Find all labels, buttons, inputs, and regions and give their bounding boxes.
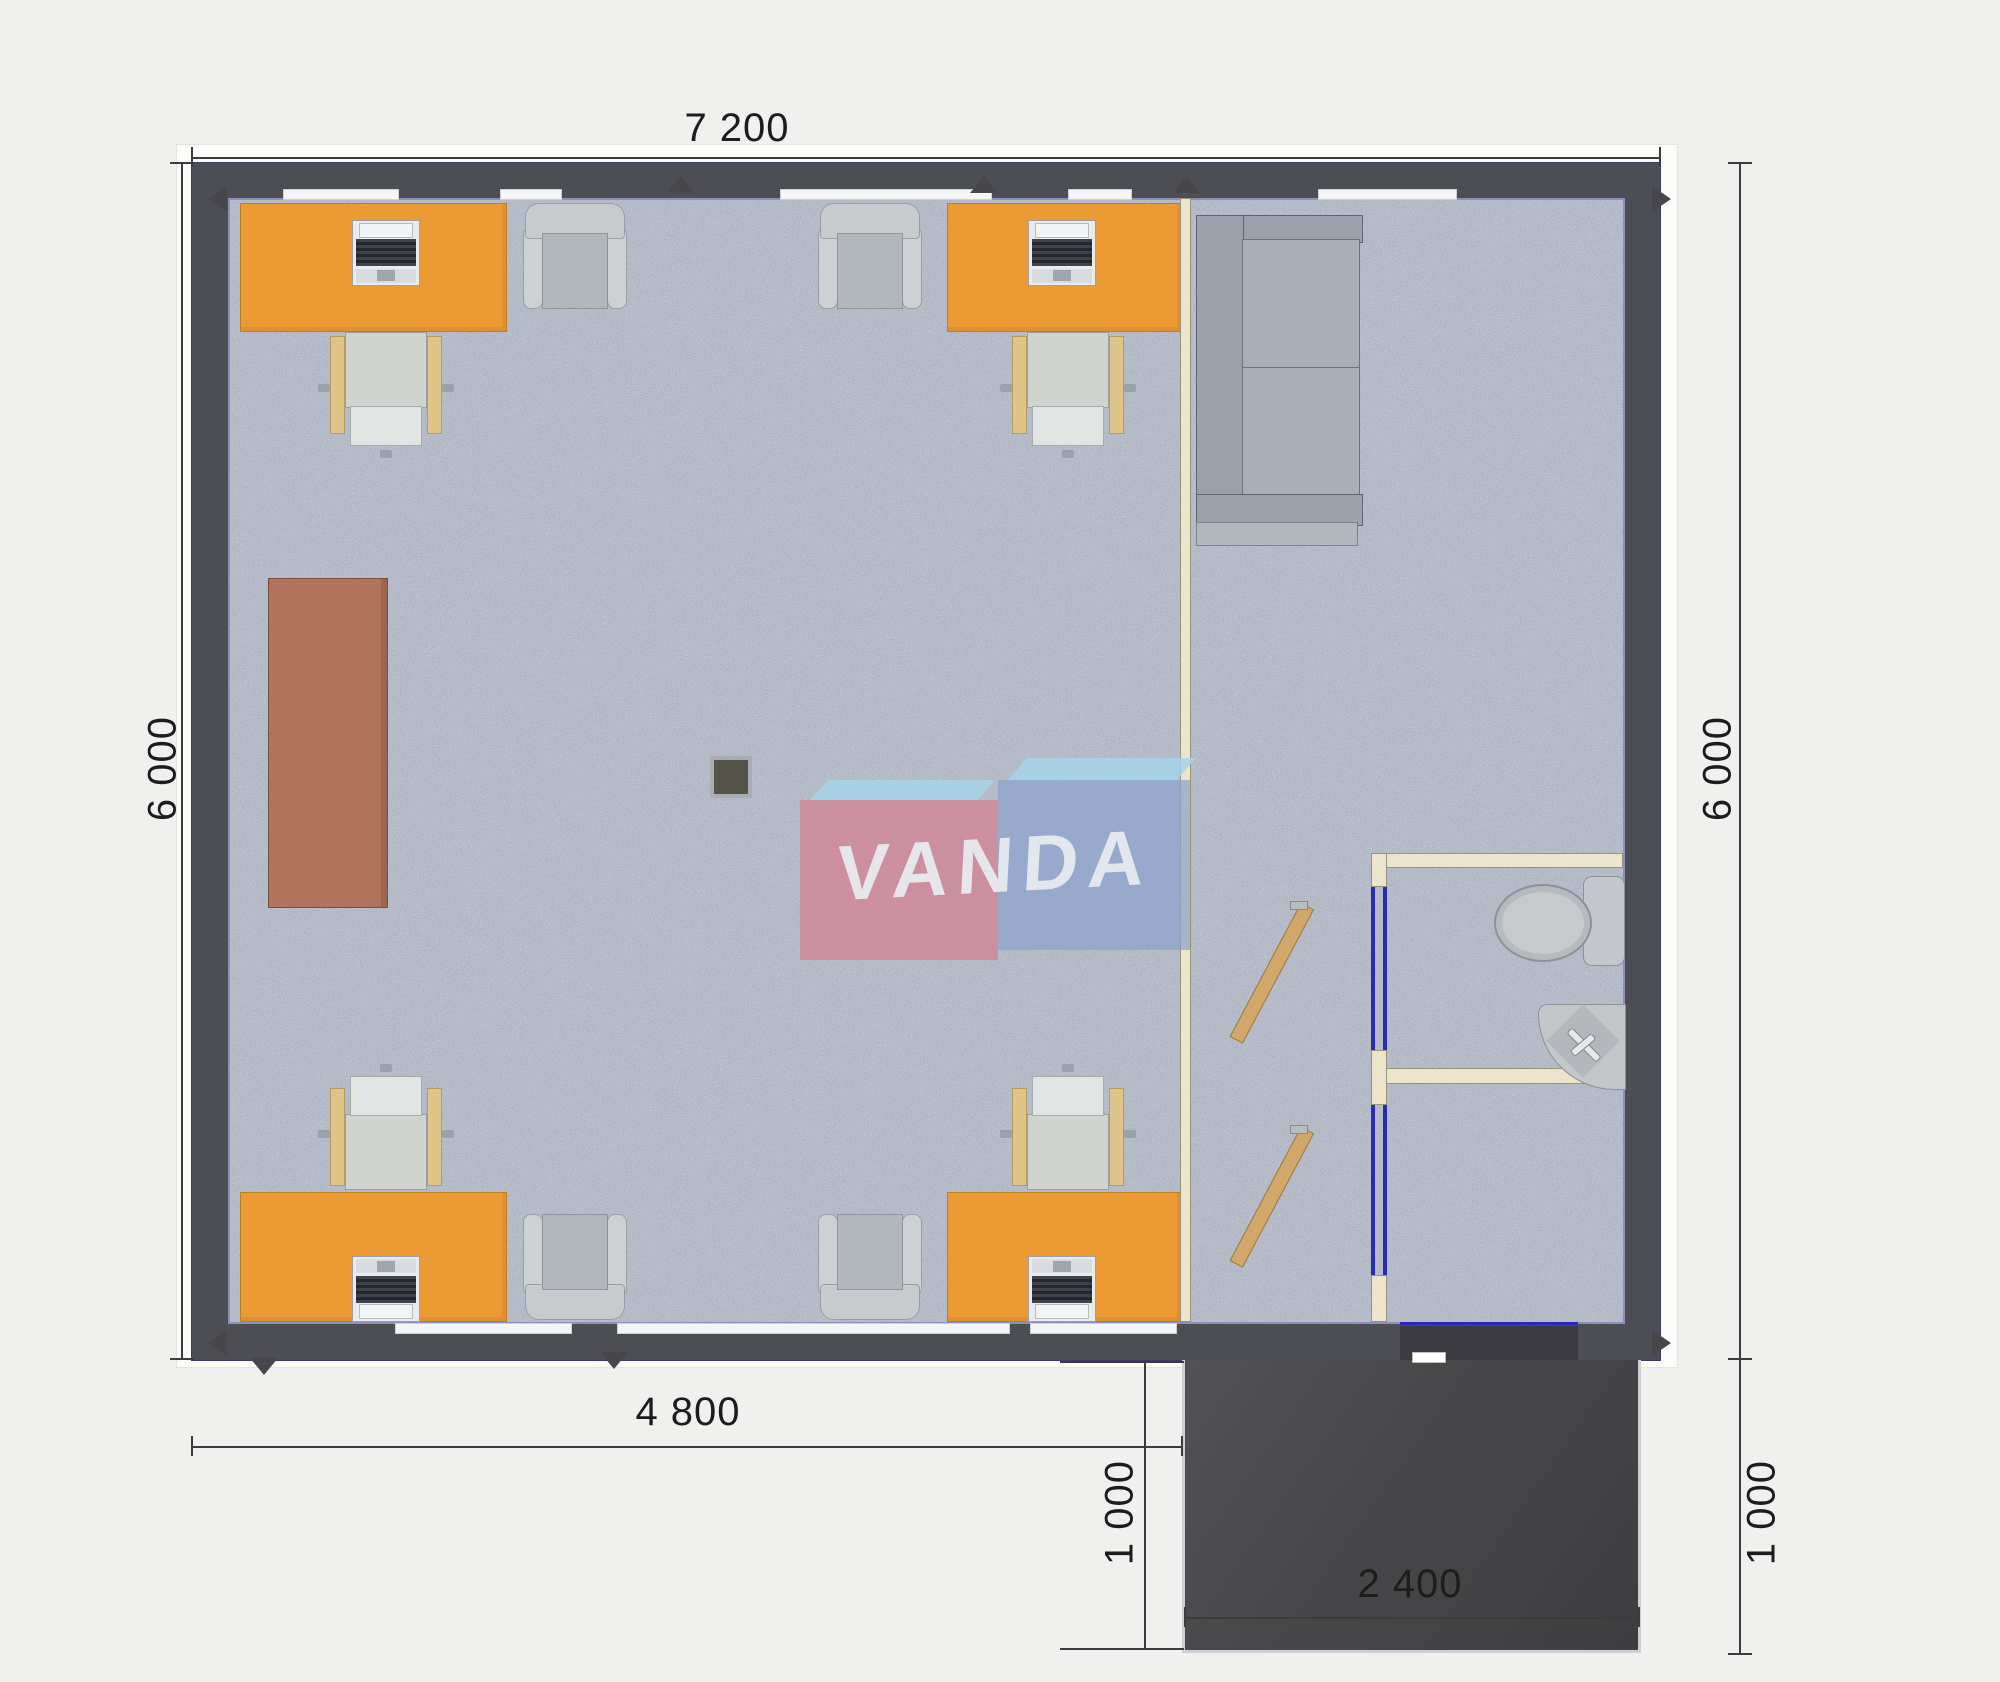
- armchair: [818, 203, 922, 315]
- window-icon: [1068, 189, 1132, 200]
- sofa-cushion: [1242, 239, 1360, 369]
- office-chair: [1012, 1072, 1124, 1190]
- toilet-bowl: [1494, 884, 1592, 962]
- logo-bevel: [808, 780, 996, 802]
- door-frame: [1371, 1105, 1375, 1275]
- chair-back: [345, 332, 427, 408]
- dimension-tick: [1060, 1648, 1184, 1650]
- dimension-tick: [1181, 1436, 1183, 1456]
- laptop-icon: [352, 1256, 420, 1322]
- armchair: [818, 1208, 922, 1320]
- dimension-tick: [191, 1436, 193, 1456]
- laptop-keyboard: [356, 239, 416, 266]
- corner-marker-icon: [1652, 1330, 1671, 1356]
- wall-joint-marker-icon: [667, 176, 695, 193]
- chair-seat: [350, 406, 422, 446]
- armchair: [523, 203, 627, 315]
- dimension-tick: [1184, 1607, 1186, 1627]
- dimension-tick: [1728, 162, 1752, 164]
- corner-marker-icon: [250, 1358, 278, 1375]
- floor-box-icon: [710, 756, 752, 798]
- corner-marker-icon: [208, 186, 227, 212]
- dimension-line: [192, 157, 1660, 159]
- dimension-label-bottom-main: 4 800: [588, 1390, 788, 1435]
- sofa-cushion: [1242, 367, 1360, 497]
- dimension-label-top: 7 200: [637, 106, 837, 151]
- dimension-tick: [1638, 1607, 1640, 1627]
- chair-armrest: [330, 336, 345, 434]
- dimension-tick: [1728, 1358, 1752, 1360]
- dimension-line: [1185, 1617, 1640, 1619]
- vanda-watermark: VANDA: [790, 758, 1200, 970]
- chair-armrest: [427, 336, 442, 434]
- chair-wheel-icon: [318, 384, 330, 392]
- dimension-label-right: 6 000: [1696, 684, 1741, 854]
- door-handle-icon: [1290, 901, 1308, 910]
- chair-wheel-icon: [442, 384, 454, 392]
- dimension-tick: [1728, 1653, 1752, 1655]
- dimension-label-porch-bottom: 2 400: [1310, 1562, 1510, 1607]
- corner-marker-icon: [1652, 186, 1671, 212]
- dimension-tick: [170, 1358, 194, 1360]
- dimension-tick: [1060, 1361, 1184, 1363]
- dimension-tick: [170, 162, 194, 164]
- window-icon: [395, 1323, 572, 1334]
- armchair: [523, 1208, 627, 1320]
- hall-wall: [1371, 1050, 1387, 1105]
- door-frame: [1371, 887, 1375, 1050]
- office-chair: [330, 1072, 442, 1190]
- entrance-porch: [1185, 1360, 1638, 1652]
- dimension-label-porch-right: 1 000: [1740, 1428, 1785, 1598]
- dimension-line: [192, 1446, 1183, 1448]
- laptop-icon: [352, 220, 420, 286]
- storage-cabinet: [268, 578, 388, 908]
- armchair-seat: [542, 233, 608, 309]
- floor-plan: 7 200 6 000 6 000 1 000 4 800 1 000 2 40…: [0, 0, 2000, 1682]
- window-icon: [1030, 1323, 1177, 1334]
- entrance-door-threshold: [1412, 1352, 1446, 1363]
- office-chair: [330, 332, 442, 450]
- bathroom-wall: [1371, 853, 1623, 868]
- dimension-tick: [1659, 147, 1661, 167]
- dimension-label-porch-left: 1 000: [1098, 1428, 1143, 1598]
- wall-joint-marker-icon: [970, 176, 998, 193]
- hall-wall: [1371, 853, 1387, 887]
- porch-edge: [1182, 1650, 1641, 1653]
- hall-wall: [1371, 1275, 1387, 1322]
- dimension-line: [1144, 1362, 1146, 1650]
- door-frame: [1383, 887, 1387, 1050]
- corner-marker-icon: [208, 1330, 227, 1356]
- sofa-back: [1196, 215, 1244, 527]
- door-frame: [1383, 1105, 1387, 1275]
- dimension-label-left: 6 000: [141, 684, 186, 854]
- laptop-icon: [1028, 1256, 1096, 1322]
- window-icon: [1318, 189, 1457, 200]
- window-icon: [500, 189, 562, 200]
- dimension-tick: [191, 147, 193, 167]
- door-handle-icon: [1290, 1125, 1308, 1134]
- laptop-trackpad: [377, 270, 395, 281]
- chair-wheel-icon: [380, 450, 392, 458]
- window-icon: [283, 189, 399, 200]
- office-chair: [1012, 332, 1124, 450]
- entrance-door-frame: [1400, 1322, 1578, 1325]
- wall-joint-marker-icon: [600, 1352, 628, 1369]
- laptop-screen: [359, 223, 413, 238]
- laptop-icon: [1028, 220, 1096, 286]
- armchair-arm: [523, 227, 543, 309]
- window-icon: [780, 189, 992, 200]
- logo-bevel: [1006, 758, 1196, 782]
- armchair-arm: [607, 227, 627, 309]
- window-icon: [617, 1323, 1010, 1334]
- sofa-base: [1196, 522, 1358, 546]
- wall-joint-marker-icon: [1173, 176, 1201, 193]
